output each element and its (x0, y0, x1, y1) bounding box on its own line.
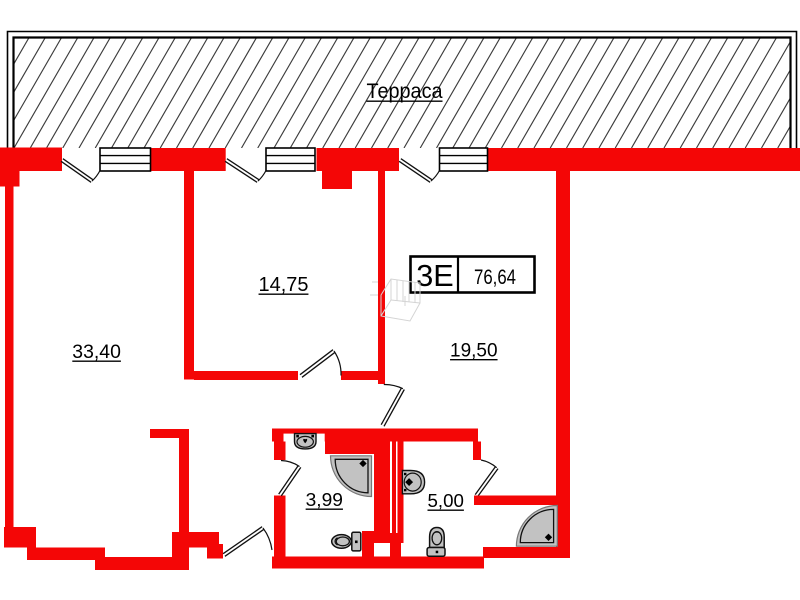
svg-text:5,00: 5,00 (428, 490, 464, 511)
svg-text:76,64: 76,64 (474, 266, 516, 289)
svg-text:3Е: 3Е (416, 258, 454, 293)
svg-text:14,75: 14,75 (259, 274, 309, 296)
svg-text:33,40: 33,40 (72, 341, 121, 363)
svg-text:Терраса: Терраса (367, 80, 443, 103)
svg-text:3,99: 3,99 (306, 489, 343, 510)
svg-text:19,50: 19,50 (450, 341, 498, 362)
